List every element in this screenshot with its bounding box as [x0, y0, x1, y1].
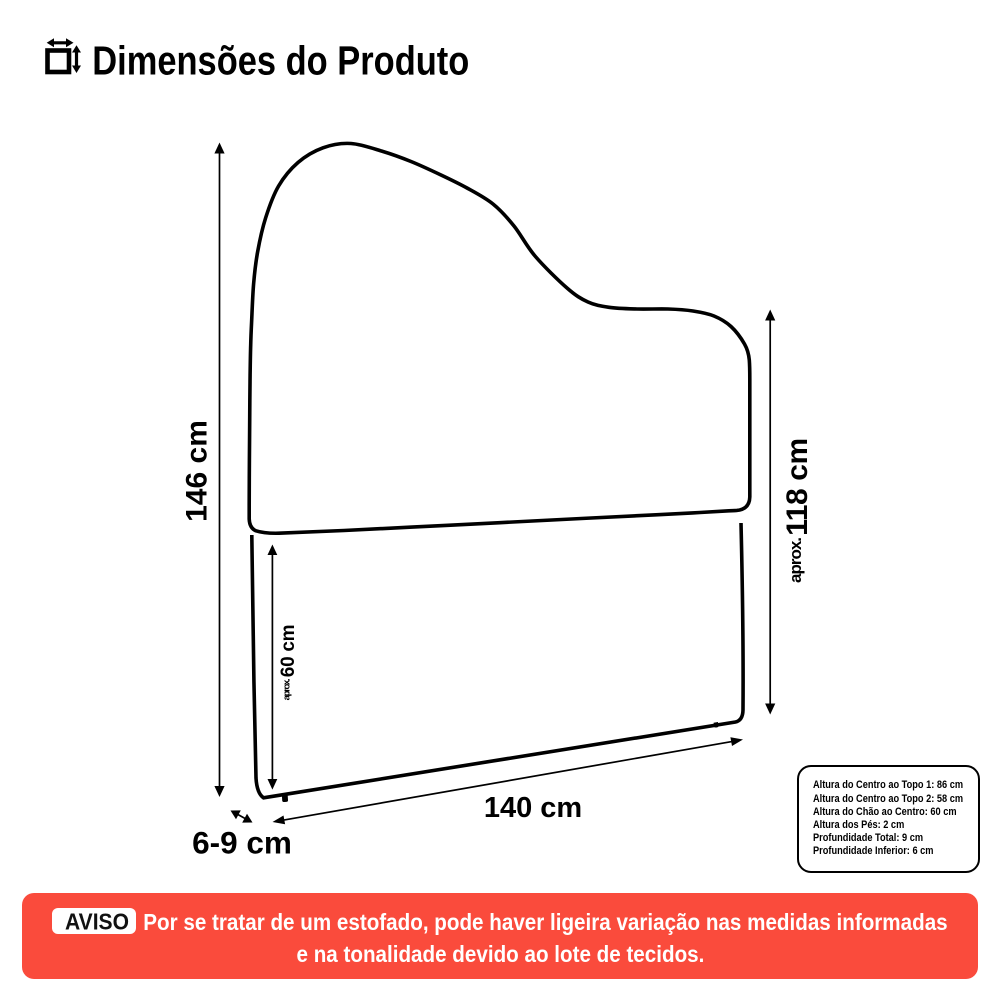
- svg-text:6-9 cm: 6-9 cm: [192, 825, 292, 861]
- svg-text:118 cm: 118 cm: [781, 438, 814, 536]
- svg-text:146 cm: 146 cm: [181, 420, 214, 522]
- svg-text:140 cm: 140 cm: [484, 792, 582, 824]
- svg-text:aprox.: aprox.: [282, 679, 293, 700]
- svg-text:Dimensões do Produto: Dimensões do Produto: [92, 38, 469, 84]
- svg-text:60 cm: 60 cm: [278, 625, 299, 677]
- svg-text:aprox.: aprox.: [786, 538, 805, 583]
